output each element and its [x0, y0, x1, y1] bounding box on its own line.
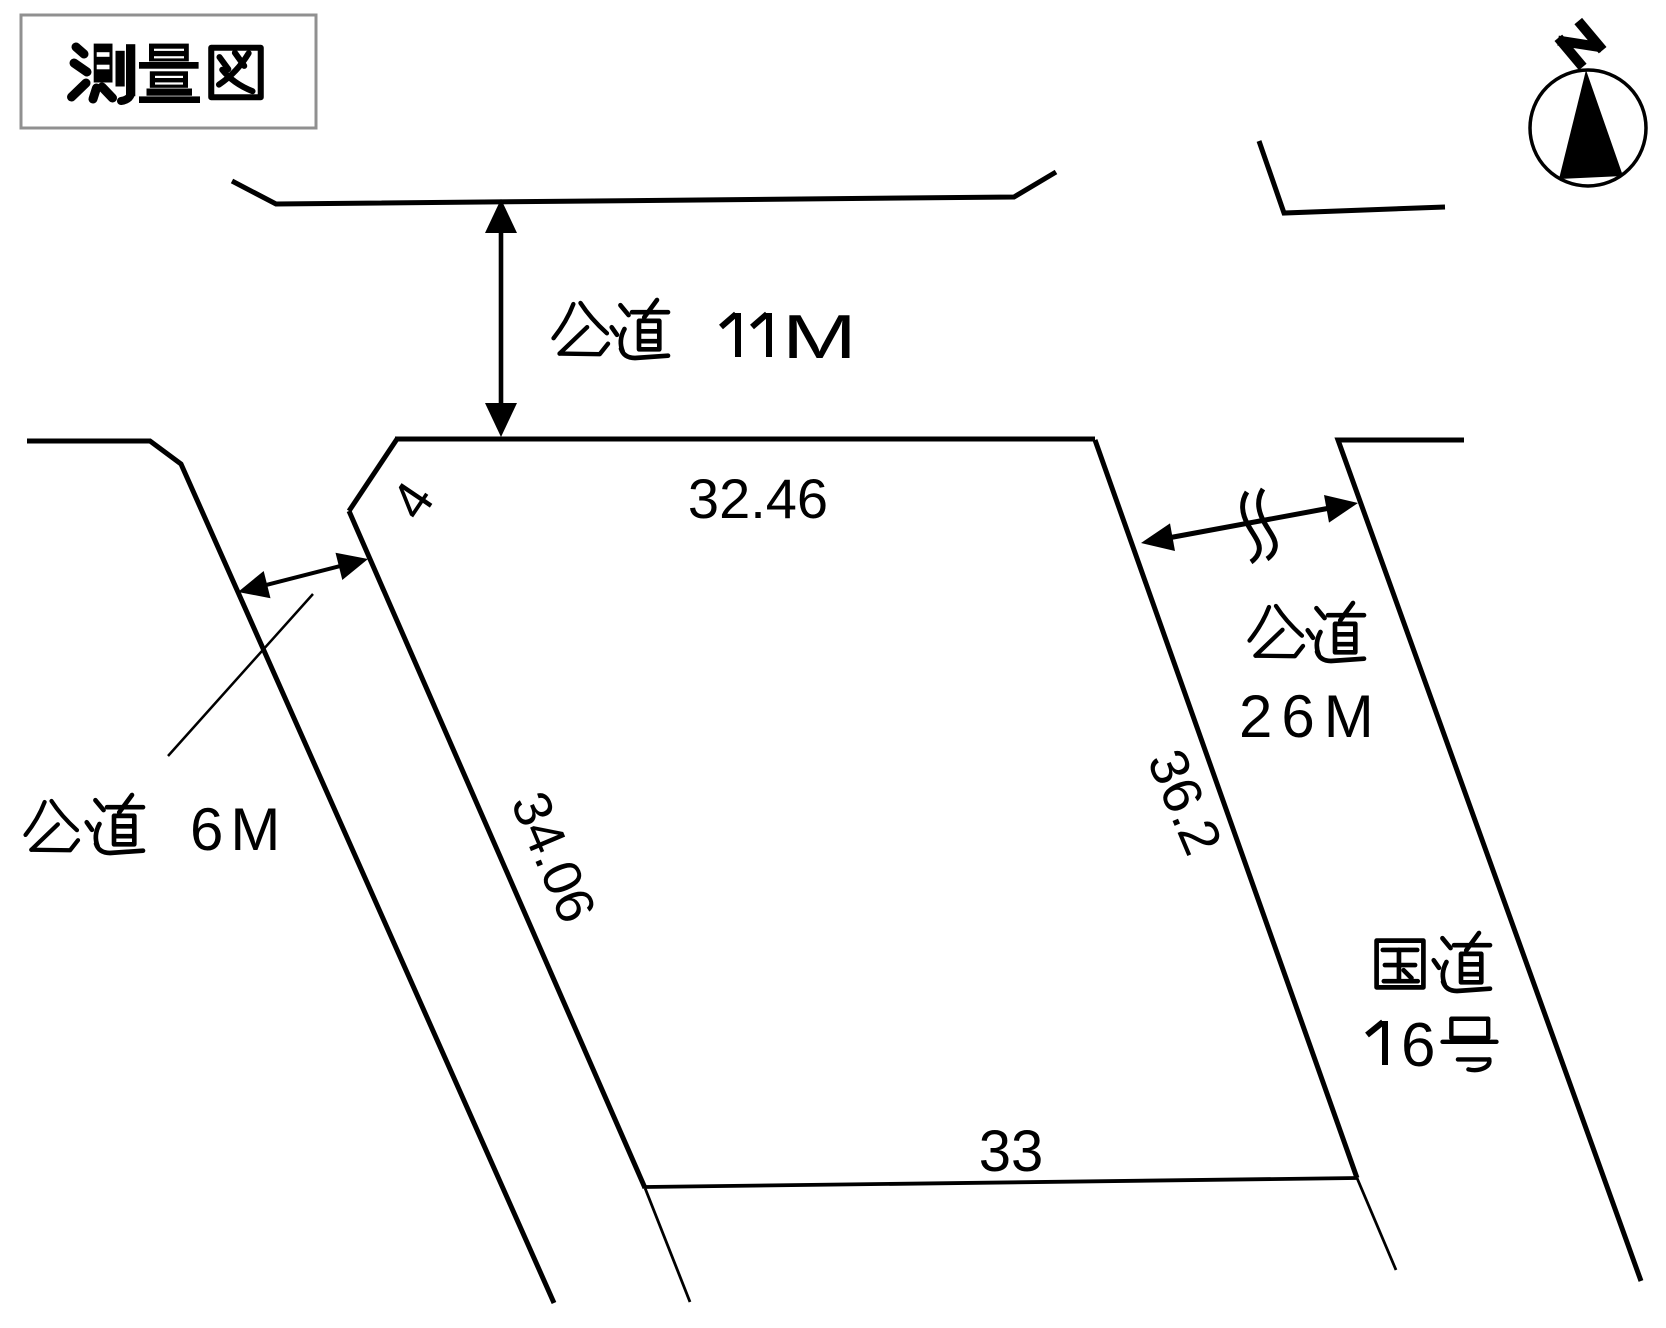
svg-text:6M: 6M [190, 796, 287, 863]
svg-text:26M: 26M [1239, 683, 1383, 750]
svg-text:33: 33 [979, 1119, 1044, 1184]
svg-text:32.46: 32.46 [688, 467, 828, 530]
svg-text:6: 6 [1401, 1011, 1435, 1080]
svg-text:M: M [782, 303, 857, 372]
